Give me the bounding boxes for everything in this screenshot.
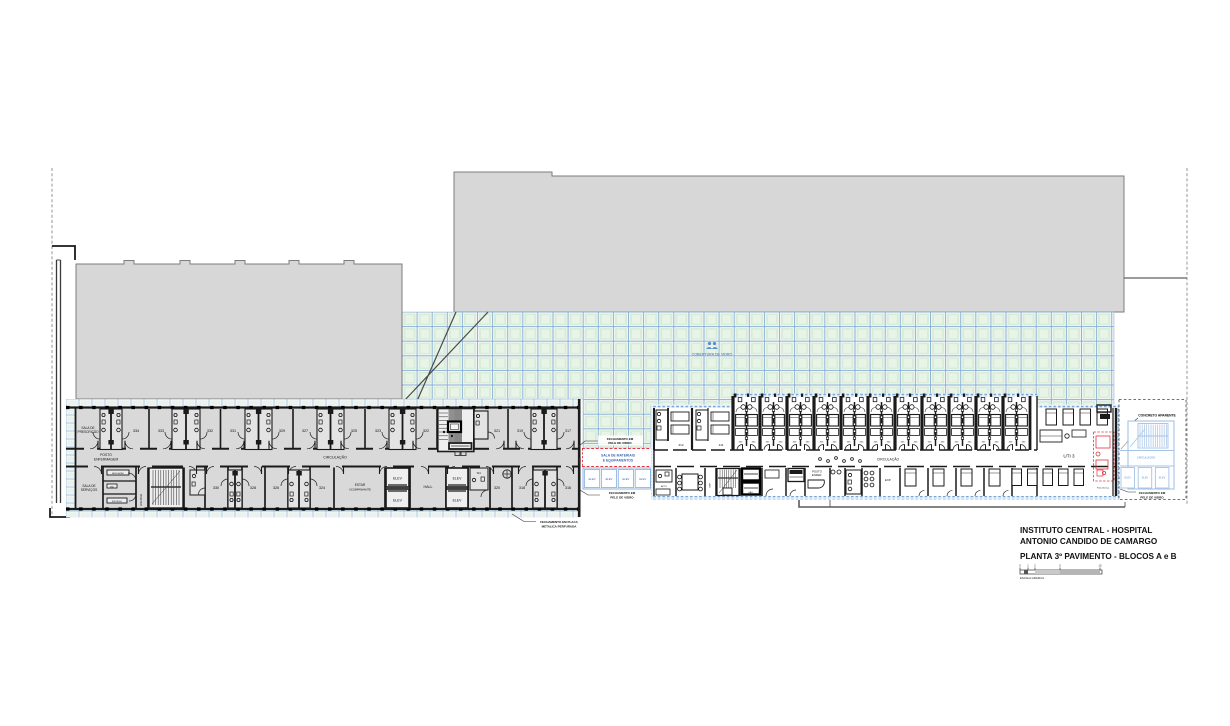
svg-text:CIRCULAÇÃO: CIRCULAÇÃO [323, 455, 347, 460]
svg-text:W.C: W.C [477, 472, 482, 475]
svg-text:332: 332 [207, 429, 213, 433]
svg-text:POSTO: POSTO [100, 453, 112, 457]
svg-text:319: 319 [517, 429, 523, 433]
svg-text:333: 333 [158, 429, 164, 433]
svg-text:PLANTA 3º PAVIMENTO - BLOCOS A: PLANTA 3º PAVIMENTO - BLOCOS A e B [1020, 552, 1177, 561]
svg-text:331: 331 [230, 429, 236, 433]
svg-text:329: 329 [279, 429, 285, 433]
svg-text:CIRCULAÇÃO: CIRCULAÇÃO [1137, 455, 1156, 460]
svg-text:ENFER.: ENFER. [812, 473, 822, 477]
svg-text:326: 326 [273, 486, 279, 490]
svg-text:CONCRETO APARENTE: CONCRETO APARENTE [1138, 414, 1176, 418]
svg-text:ACOMPANHANTE: ACOMPANHANTE [349, 488, 371, 492]
svg-text:EXPURGO: EXPURGO [112, 501, 122, 503]
svg-text:ANTONIO CANDIDO DE CAMARGO: ANTONIO CANDIDO DE CAMARGO [1020, 537, 1158, 546]
svg-text:UTI 3: UTI 3 [1063, 454, 1075, 459]
svg-text:ELEV: ELEV [453, 499, 462, 503]
svg-text:ELEV: ELEV [453, 477, 462, 481]
svg-text:Porta Serviço: Porta Serviço [1097, 487, 1110, 490]
svg-text:ELEV: ELEV [606, 477, 613, 481]
svg-text:EXP.: EXP. [885, 478, 891, 482]
svg-text:ENFERMAGEM: ENFERMAGEM [94, 458, 118, 462]
svg-text:325: 325 [351, 429, 357, 433]
svg-text:DEP.: DEP. [710, 482, 712, 487]
svg-text:320: 320 [494, 486, 500, 490]
svg-text:327: 327 [302, 429, 308, 433]
svg-text:MEDICAÇÃO: MEDICAÇÃO [112, 472, 125, 475]
svg-text:SERVIÇOS: SERVIÇOS [81, 488, 97, 492]
svg-text:323: 323 [375, 429, 381, 433]
svg-text:312: 312 [678, 443, 683, 447]
svg-text:ELEV: ELEV [1124, 477, 1131, 480]
svg-text:ROUPARIA: ROUPARIA [140, 493, 143, 506]
svg-text:PRESCRIÇÃO: PRESCRIÇÃO [77, 429, 99, 434]
svg-text:321: 321 [494, 429, 500, 433]
svg-text:334: 334 [133, 429, 139, 433]
svg-text:ELEV: ELEV [1159, 477, 1166, 480]
svg-text:ELEV: ELEV [589, 477, 596, 481]
svg-text:ESTAR: ESTAR [355, 483, 366, 487]
svg-text:COBERTURA DE VIDRO: COBERTURA DE VIDRO [692, 353, 733, 357]
svg-text:3.13: 3.13 [578, 458, 582, 464]
svg-text:E EQUIPAMENTOS: E EQUIPAMENTOS [603, 459, 634, 463]
svg-text:ELEV: ELEV [393, 477, 402, 481]
svg-text:330: 330 [213, 486, 219, 490]
svg-text:328: 328 [250, 486, 256, 490]
svg-text:FECHAMENTO EM PLACA: FECHAMENTO EM PLACA [540, 520, 578, 524]
svg-text:CIRCULAÇÃO: CIRCULAÇÃO [877, 457, 900, 462]
svg-text:324: 324 [319, 486, 325, 490]
svg-text:ELEV: ELEV [1142, 477, 1149, 480]
svg-text:FECHAMENTO EM: FECHAMENTO EM [609, 491, 636, 495]
svg-text:APTO: APTO [661, 485, 667, 488]
svg-text:METALICA PERFURADA: METALICA PERFURADA [542, 525, 578, 529]
svg-text:HALL: HALL [424, 485, 433, 489]
svg-text:316: 316 [565, 486, 571, 490]
svg-text:317: 317 [565, 429, 571, 433]
svg-text:PELE DE VIDRO: PELE DE VIDRO [608, 441, 632, 445]
svg-text:PELE DE VIDRO: PELE DE VIDRO [1140, 496, 1164, 500]
svg-text:ELEV: ELEV [639, 477, 646, 481]
svg-text:ESCALA GRAFICA: ESCALA GRAFICA [1020, 576, 1044, 580]
svg-text:SALA DE MATERIAIS: SALA DE MATERIAIS [601, 454, 636, 458]
svg-text:HALL: HALL [748, 491, 754, 494]
svg-text:ELEV: ELEV [393, 499, 402, 503]
svg-text:311: 311 [719, 443, 724, 447]
svg-text:322: 322 [423, 429, 429, 433]
svg-text:FECHAMENTO EM: FECHAMENTO EM [1139, 491, 1166, 495]
svg-text:INSTITUTO CENTRAL - HOSPITAL: INSTITUTO CENTRAL - HOSPITAL [1020, 526, 1152, 535]
svg-text:ELEV: ELEV [622, 477, 629, 481]
svg-text:PELE DE VIDRO: PELE DE VIDRO [610, 495, 634, 499]
svg-text:318: 318 [519, 486, 525, 490]
